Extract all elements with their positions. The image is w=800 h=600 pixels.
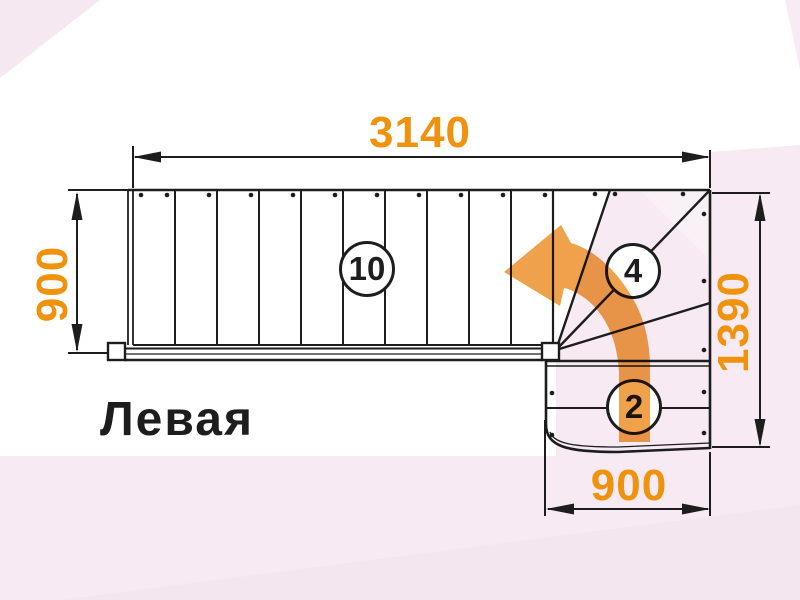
bottom-flight-step-count: 2 <box>625 388 643 426</box>
dimension-label-left-height: 900 <box>28 204 78 364</box>
newel-posts <box>108 343 559 360</box>
straight-flight-step-count: 10 <box>349 250 386 288</box>
stair-plan-diagram: 10 4 2 3140 900 1390 900 Левая <box>0 0 800 600</box>
bottom-flight-step-count-badge: 2 <box>606 379 662 435</box>
plan-title: Левая <box>100 392 254 447</box>
straight-flight-step-count-badge: 10 <box>339 241 395 297</box>
winder-step-count: 4 <box>624 252 642 290</box>
dimension-label-bottom-width: 900 <box>529 461 729 511</box>
winder-step-count-badge: 4 <box>605 243 661 299</box>
dimension-label-top-width: 3140 <box>320 108 520 158</box>
dimension-label-right-height: 1390 <box>709 242 759 402</box>
